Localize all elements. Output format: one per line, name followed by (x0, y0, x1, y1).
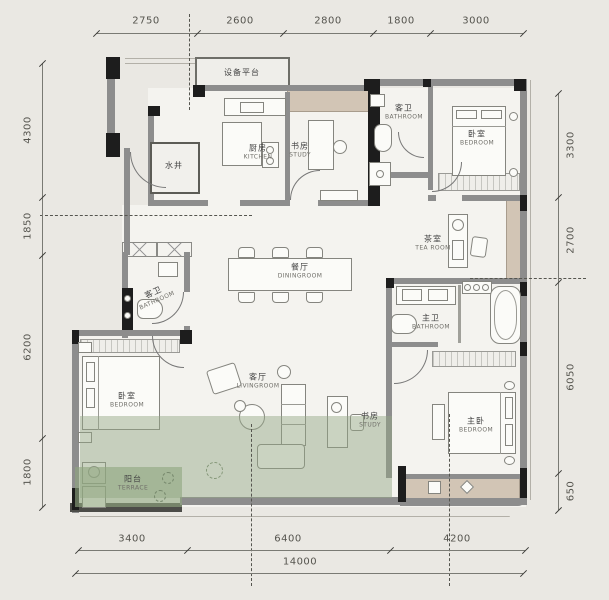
room-label-zh: 主卧 (459, 417, 493, 427)
dining-chair (306, 292, 323, 303)
nightstand (504, 381, 515, 390)
desk-chair (333, 140, 347, 154)
dim-label: 3000 (462, 16, 489, 27)
wall-column (423, 79, 431, 87)
dimension-line-bottom (78, 550, 525, 551)
dimension-line-top (96, 33, 523, 34)
bay-window-study (287, 90, 369, 112)
room-label-equipment-platform: 设备平台 (224, 68, 260, 78)
dim-tick (520, 570, 527, 577)
dim-label: 3300 (566, 131, 577, 158)
wall (107, 79, 115, 133)
dim-label: 1800 (387, 16, 414, 27)
wall (148, 200, 208, 206)
room-label-dining-room: 餐厅 DININGROOM (278, 263, 323, 280)
room-label-zh: 书房 (289, 142, 311, 152)
room-label-zh: 设备平台 (224, 68, 260, 78)
wall-column (386, 278, 394, 288)
wall (368, 79, 526, 86)
eave-line (125, 63, 195, 64)
plant-icon (154, 490, 166, 502)
room-label-zh: 书房 (359, 412, 381, 422)
axis-line (251, 424, 252, 586)
bathroom-sink (158, 262, 178, 277)
wall (400, 474, 526, 479)
tea-tray (452, 240, 464, 260)
basin-icon (464, 284, 471, 291)
eave-line (530, 80, 531, 500)
tea-kettle-icon (452, 219, 464, 231)
room-label-en: LIVINGROOM (237, 382, 280, 389)
wall-column (148, 106, 160, 116)
axis-line (449, 414, 450, 586)
basin-icon (482, 284, 489, 291)
balcony-decor (428, 481, 441, 494)
pillow (86, 362, 95, 382)
dim-label: 4300 (23, 116, 34, 143)
wall-column (520, 282, 527, 296)
room-label-living-room: 客厅 LIVINGROOM (237, 373, 280, 390)
eave-line (80, 516, 510, 517)
room-label-zh: 阳台 (118, 475, 148, 485)
room-label-study-top: 书房 STUDY (289, 142, 311, 159)
wall-column (106, 133, 120, 157)
room-label-kitchen: 厨房 KITCHEN (244, 144, 273, 161)
axis-line (40, 215, 252, 216)
dim-label: 6050 (566, 363, 577, 390)
dining-chair (272, 247, 289, 258)
wall-column (514, 79, 526, 91)
dining-chair (272, 292, 289, 303)
bathroom-sink (370, 94, 385, 107)
room-label-en: BATHROOM (412, 323, 450, 330)
dimension-line-right (558, 93, 559, 510)
dining-chair (306, 247, 323, 258)
wall (240, 200, 290, 206)
room-label-zh: 主卫 (412, 314, 450, 324)
wall (428, 195, 436, 201)
dining-chair (238, 247, 255, 258)
bed-line (500, 392, 501, 454)
room-label-en: BEDROOM (110, 401, 144, 408)
room-label-en: KITCHEN (244, 153, 273, 160)
dim-label: 3400 (118, 534, 145, 545)
wall (386, 342, 438, 347)
room-label-zh: 卧室 (110, 392, 144, 402)
wall (193, 85, 373, 91)
room-label-en: TEA ROOM (415, 244, 450, 251)
nightstand (504, 456, 515, 465)
wall (400, 498, 526, 506)
wall-column (520, 468, 527, 498)
eave-line (125, 58, 195, 59)
dim-label: 2600 (226, 16, 253, 27)
basin-icon (473, 284, 480, 291)
nightstand (78, 342, 92, 353)
basin (428, 289, 448, 301)
room-label-terrace: 阳台 TERRACE (118, 475, 148, 492)
wall (462, 195, 526, 201)
nightstand (509, 168, 518, 177)
lamp-icon (331, 402, 342, 413)
room-label-zh: 厨房 (244, 144, 273, 154)
dim-label: 6200 (23, 333, 34, 360)
dim-label: 1800 (23, 458, 34, 485)
floor-plan: 设备平台 厨房 KITCHEN 水井 书房 STUDY 客卫 BATHROOM … (0, 0, 609, 600)
dim-tick (520, 30, 527, 37)
room-label-zh: 客厅 (237, 373, 280, 383)
pillow (505, 424, 513, 446)
kitchen-sink (240, 102, 264, 113)
room-label-en: STUDY (289, 151, 311, 158)
plant-icon (162, 472, 174, 484)
wall (180, 497, 402, 505)
wall-column (398, 466, 406, 502)
wall (124, 148, 130, 255)
basin-icon (124, 312, 131, 319)
room-label-zh: 茶室 (415, 235, 450, 245)
room-label-master-bath: 主卫 BATHROOM (412, 314, 450, 331)
dim-label: 2800 (314, 16, 341, 27)
bay-window-right (506, 198, 521, 282)
dim-label: 1850 (23, 212, 34, 239)
bathtub-inner (494, 290, 517, 340)
room-label-zh: 餐厅 (278, 263, 323, 273)
sofa-line (281, 404, 306, 405)
dim-label: 6400 (274, 534, 301, 545)
coffee-table-small (234, 400, 246, 412)
pillow (456, 110, 477, 119)
shower-drain-icon (376, 170, 384, 178)
door-arc-entry (130, 152, 166, 188)
room-label-en: TERRACE (118, 484, 148, 491)
basin (402, 289, 422, 301)
room-label-study-bottom: 书房 STUDY (359, 412, 381, 429)
cabinet (320, 190, 358, 201)
axis-line (189, 14, 190, 110)
wall-column (520, 342, 527, 356)
axis-line (470, 278, 586, 279)
wall (458, 285, 461, 343)
dim-label: 650 (566, 481, 577, 502)
dim-label: 4200 (443, 534, 470, 545)
room-label-guest-bath-top: 客卫 BATHROOM (385, 104, 423, 121)
dining-chair (238, 292, 255, 303)
pillow (505, 397, 513, 419)
dresser (432, 404, 445, 440)
dim-label-total: 14000 (283, 557, 317, 568)
room-label-zh: 水井 (165, 161, 183, 171)
nightstand (509, 112, 518, 121)
basin-icon (124, 295, 131, 302)
dim-tick (39, 504, 46, 511)
wardrobe (432, 351, 516, 367)
room-label-en: DININGROOM (278, 272, 323, 279)
room-label-zh: 卧室 (460, 130, 494, 140)
room-label-en: BEDROOM (459, 426, 493, 433)
wall-column (364, 79, 380, 91)
tea-chair (470, 236, 489, 258)
room-label-bedroom-top-right: 卧室 BEDROOM (460, 130, 494, 147)
room-label-tea-room: 茶室 TEA ROOM (415, 235, 450, 252)
dim-label: 2700 (566, 226, 577, 253)
dim-label: 2750 (132, 16, 159, 27)
room-label-en: STUDY (359, 421, 381, 428)
room-label-water-shaft: 水井 (165, 161, 183, 171)
pillow (481, 110, 502, 119)
room-label-en: BEDROOM (460, 139, 494, 146)
room-label-master-bedroom: 主卧 BEDROOM (459, 417, 493, 434)
wall-column (520, 195, 527, 211)
desk (308, 120, 334, 170)
wall-column (106, 57, 120, 79)
dimension-line-left (42, 63, 43, 507)
dimension-line-total (75, 573, 523, 574)
dim-tick (555, 507, 562, 514)
dim-tick (522, 547, 529, 554)
toilet-icon (374, 124, 392, 152)
wall (184, 252, 190, 292)
room-label-bedroom-left: 卧室 BEDROOM (110, 392, 144, 409)
room-label-zh: 客卫 (385, 104, 423, 114)
bed-line (452, 126, 506, 127)
wall-column (193, 85, 205, 97)
pillow (86, 388, 95, 408)
room-label-en: BATHROOM (385, 113, 423, 120)
